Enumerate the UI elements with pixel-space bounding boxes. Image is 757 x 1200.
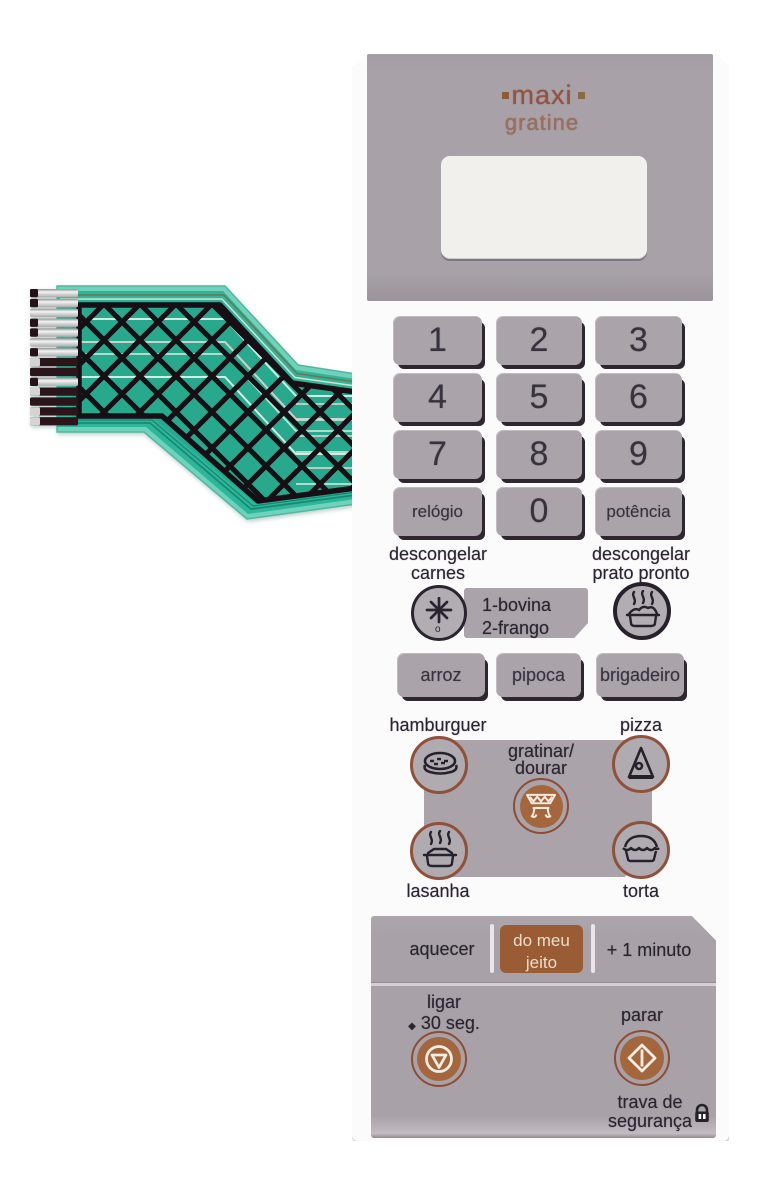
- svg-text:o: o: [435, 624, 441, 633]
